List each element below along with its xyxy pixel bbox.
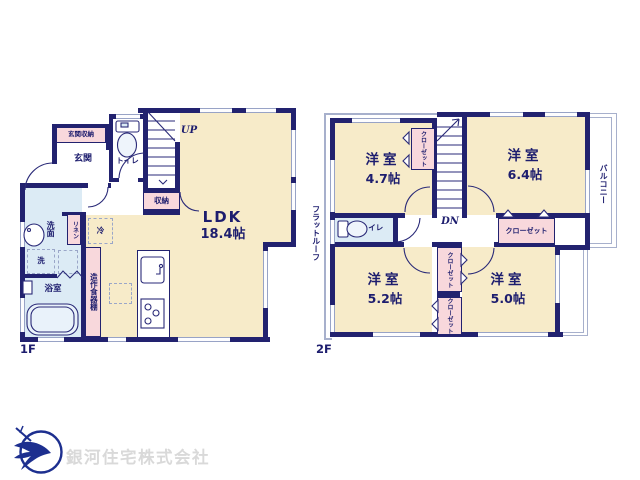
stair-treads-2f bbox=[437, 127, 462, 208]
laundry-space: 洗 bbox=[27, 249, 55, 274]
floor1-label: 1F bbox=[20, 343, 48, 357]
logo-bird-icon bbox=[14, 442, 51, 470]
window-marker bbox=[291, 130, 296, 177]
window-marker bbox=[545, 112, 577, 117]
bedroom1-size: 4.7帖 bbox=[345, 172, 421, 187]
bathroom-label: 浴室 bbox=[35, 284, 71, 296]
toilet-2f-label: トイレ bbox=[352, 222, 392, 234]
floorplan-page: 玄関収納 収納 リネン 造作食器棚 冷 洗 UP LDK 18.4帖 玄関 トイ… bbox=[0, 0, 640, 480]
window-marker bbox=[38, 337, 64, 342]
window-marker bbox=[116, 114, 140, 119]
toilet-2f-door-arc bbox=[397, 218, 420, 242]
entrance-label: 玄関 bbox=[64, 153, 102, 166]
company-name: 銀河住宅株式会社 bbox=[66, 444, 266, 466]
logo-comet-tick bbox=[20, 426, 23, 433]
wall-segment bbox=[291, 108, 296, 247]
window-marker bbox=[478, 332, 548, 337]
window-marker bbox=[352, 118, 400, 123]
wall-segment bbox=[20, 274, 57, 278]
window-marker bbox=[263, 251, 268, 308]
wall-segment bbox=[555, 245, 590, 250]
company-logo bbox=[14, 426, 62, 473]
toilet-1f-fixture bbox=[116, 121, 139, 157]
window-marker bbox=[330, 220, 335, 244]
window-marker bbox=[200, 108, 232, 113]
floor2-label: 2F bbox=[316, 343, 344, 357]
flatroof-outline bbox=[324, 113, 326, 340]
logo-circle bbox=[21, 432, 62, 473]
wall-segment bbox=[109, 178, 119, 182]
window-marker bbox=[20, 222, 25, 247]
bedroom3-name: 洋室 bbox=[347, 273, 423, 289]
ldk-size: 18.4帖 bbox=[192, 227, 254, 243]
wall-segment bbox=[20, 183, 88, 188]
fridge-space: 冷 bbox=[88, 218, 113, 244]
bedroom2-size: 6.4帖 bbox=[487, 168, 563, 183]
stair-diagonal-2f bbox=[437, 119, 459, 141]
wall-segment bbox=[109, 114, 113, 182]
flatroof-outline bbox=[324, 338, 332, 340]
utility-space bbox=[58, 250, 78, 274]
window-marker bbox=[555, 255, 560, 303]
window-marker bbox=[330, 305, 335, 332]
window-marker bbox=[585, 170, 590, 213]
window-marker bbox=[178, 337, 230, 342]
flatroof-outline bbox=[324, 113, 437, 115]
toilet-1f-label: トイレ bbox=[111, 156, 144, 167]
window-marker bbox=[246, 108, 276, 113]
wall-segment bbox=[108, 183, 111, 188]
window-marker bbox=[291, 183, 296, 210]
wall-segment bbox=[393, 213, 398, 247]
bedroom1-name: 洋室 bbox=[345, 153, 421, 169]
bedroom2-floor bbox=[467, 117, 585, 215]
roof-outline-br-inner bbox=[560, 250, 584, 333]
cupboard-box: 造作食器棚 bbox=[85, 247, 101, 337]
wall-segment bbox=[143, 210, 180, 215]
closet-mid-lower: クローゼット bbox=[437, 297, 462, 335]
bedroom3-floor bbox=[335, 247, 432, 332]
kitchen-island bbox=[137, 250, 170, 338]
bedroom2-name: 洋室 bbox=[487, 149, 563, 165]
washroom-door-arc bbox=[88, 187, 108, 207]
window-marker bbox=[108, 337, 126, 342]
bedroom4-name: 洋室 bbox=[470, 273, 546, 289]
bedroom4-size: 5.0帖 bbox=[470, 292, 546, 307]
washroom-label: 洗面 bbox=[43, 210, 58, 248]
wall-segment bbox=[462, 112, 467, 218]
wall-segment bbox=[143, 108, 148, 192]
stairs-up-label: UP bbox=[177, 124, 201, 137]
closet-bedroom2: クローゼット bbox=[498, 218, 555, 244]
closet-mid-upper: クローゼット bbox=[437, 247, 462, 292]
linen-box: リネン bbox=[67, 214, 81, 245]
entrance-storage-box: 玄関収納 bbox=[56, 127, 106, 143]
window-marker bbox=[20, 298, 25, 332]
storage-box: 収納 bbox=[143, 192, 180, 210]
window-marker bbox=[373, 332, 420, 337]
wall-segment bbox=[175, 142, 180, 192]
bedroom3-size: 5.2帖 bbox=[347, 292, 423, 307]
bedroom4-floor bbox=[462, 247, 555, 332]
ldk-name: LDK bbox=[195, 209, 250, 226]
stairs-dn-label: DN bbox=[436, 215, 464, 228]
balcony-label: バルコニー bbox=[596, 152, 611, 216]
window-marker bbox=[490, 112, 523, 117]
window-marker bbox=[330, 160, 335, 212]
flat-roof-label: フラットルーフ bbox=[308, 190, 324, 275]
kitchen-side-space bbox=[109, 283, 132, 304]
logo-comet-line bbox=[16, 428, 31, 441]
